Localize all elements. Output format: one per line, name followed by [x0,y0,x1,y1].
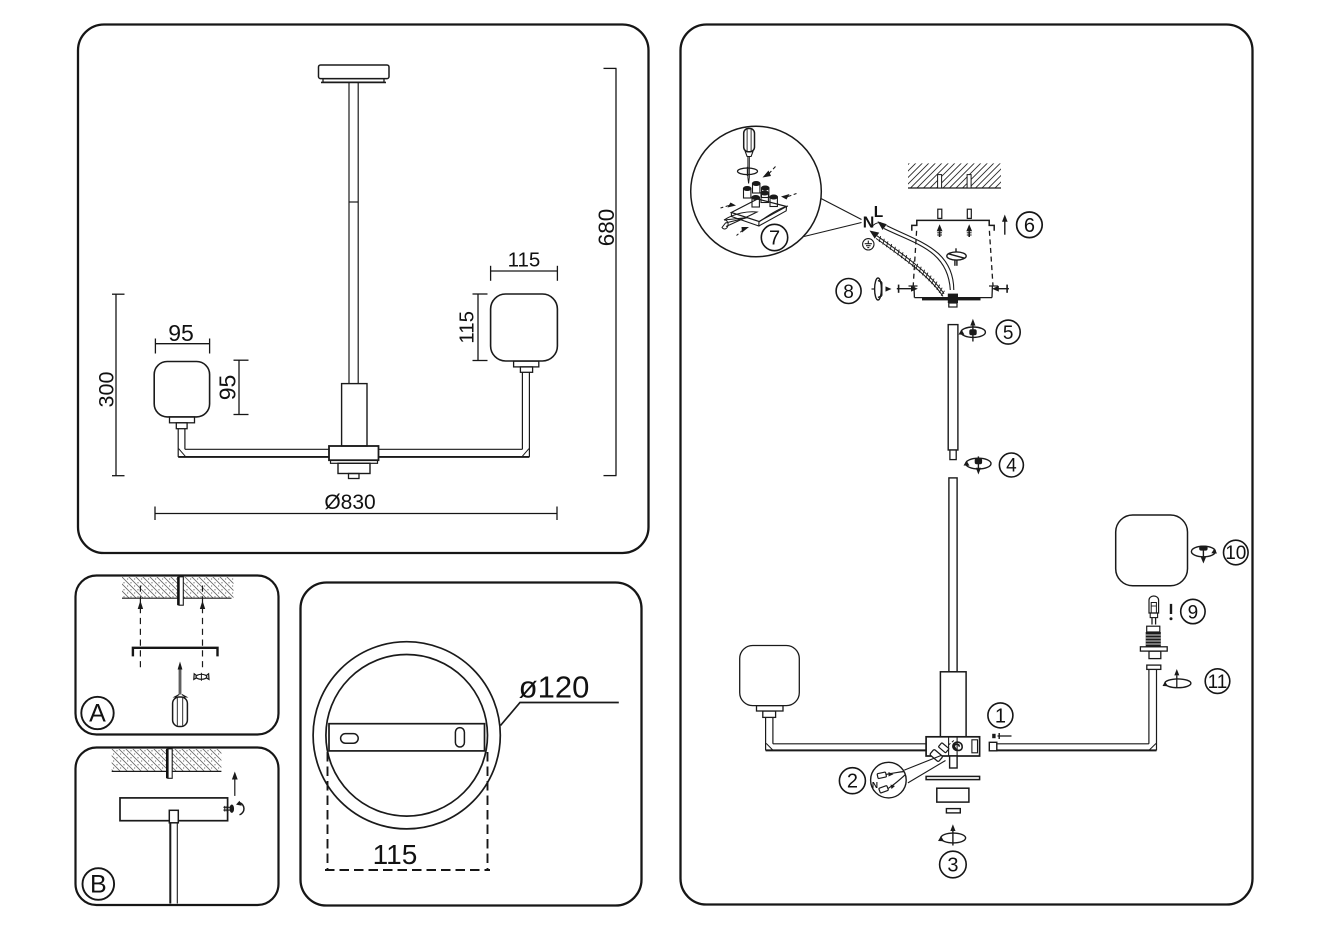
svg-text:ø120: ø120 [519,670,590,705]
svg-text:A: A [89,700,106,728]
svg-text:L: L [874,204,883,221]
svg-text:6: 6 [1024,215,1035,237]
svg-text:5: 5 [1003,323,1014,344]
svg-text:8: 8 [843,282,854,303]
svg-text:680: 680 [594,209,619,247]
svg-text:300: 300 [94,372,118,408]
svg-text:3: 3 [947,855,958,877]
svg-text:Ø830: Ø830 [324,491,375,514]
svg-text:1: 1 [995,705,1006,727]
svg-text:115: 115 [456,311,479,344]
svg-text:B: B [90,871,107,899]
svg-text:95: 95 [215,375,241,401]
svg-text:4: 4 [1006,456,1017,477]
svg-text:2: 2 [847,771,858,793]
svg-text:9: 9 [1188,602,1199,623]
svg-text:N: N [872,780,878,790]
svg-text:115: 115 [508,249,541,272]
svg-text:10: 10 [1225,543,1246,564]
svg-text:N: N [863,215,875,232]
svg-text:115: 115 [373,839,418,870]
svg-text:7: 7 [769,228,780,250]
svg-text:95: 95 [168,320,194,346]
svg-text:11: 11 [1208,672,1228,693]
